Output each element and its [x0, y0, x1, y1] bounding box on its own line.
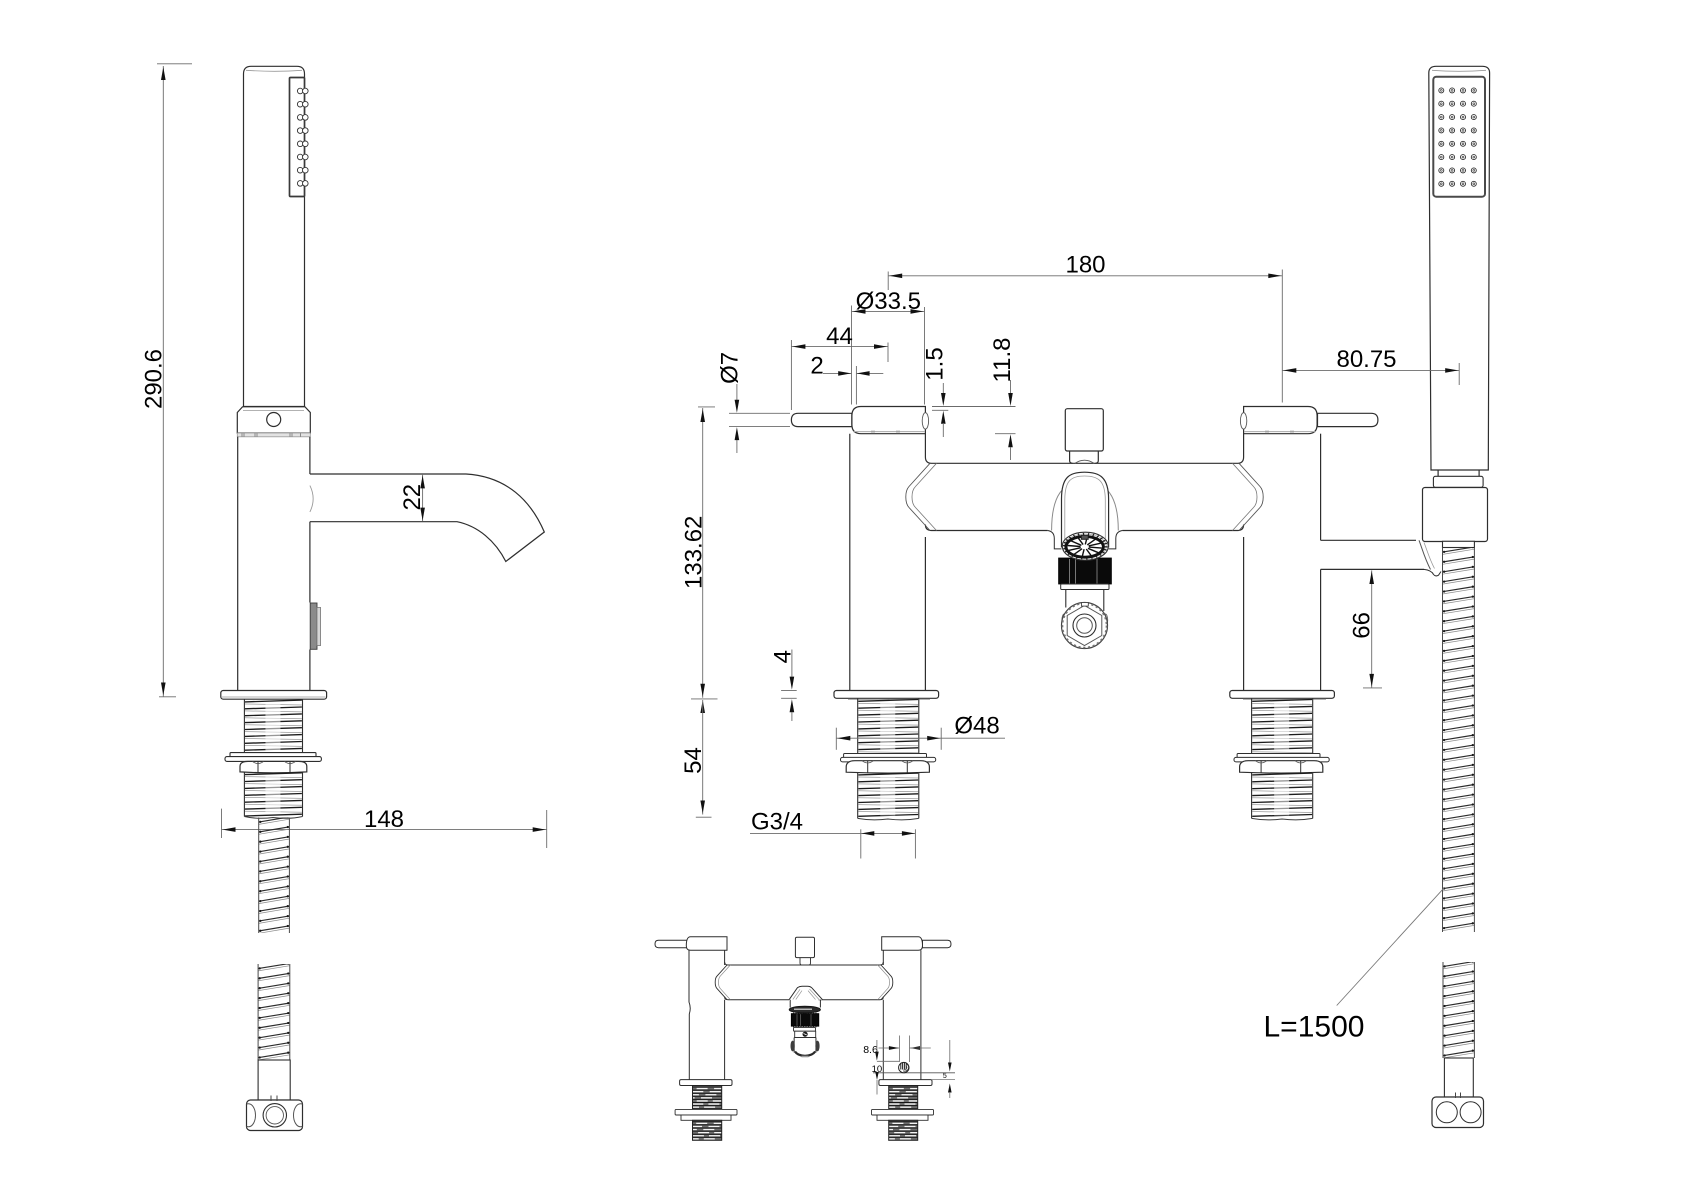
svg-text:Ø7: Ø7 — [717, 352, 744, 384]
svg-text:Ø33.5: Ø33.5 — [856, 288, 921, 315]
svg-text:148: 148 — [364, 806, 404, 833]
svg-text:22: 22 — [399, 484, 426, 511]
svg-text:44: 44 — [826, 323, 853, 350]
svg-text:2: 2 — [810, 353, 823, 380]
svg-text:54: 54 — [680, 747, 707, 774]
svg-text:66: 66 — [1349, 612, 1376, 639]
svg-text:11.8: 11.8 — [989, 338, 1016, 383]
svg-text:1.5: 1.5 — [922, 347, 949, 380]
svg-text:4: 4 — [770, 650, 797, 663]
svg-text:Ø48: Ø48 — [954, 713, 999, 740]
svg-text:5: 5 — [943, 1073, 947, 1080]
svg-text:133.62: 133.62 — [681, 516, 708, 589]
svg-text:290.6: 290.6 — [141, 349, 168, 409]
svg-text:180: 180 — [1065, 252, 1105, 279]
svg-text:80.75: 80.75 — [1336, 346, 1396, 373]
svg-text:L=1500: L=1500 — [1264, 1011, 1365, 1044]
svg-text:G3/4: G3/4 — [751, 809, 803, 836]
